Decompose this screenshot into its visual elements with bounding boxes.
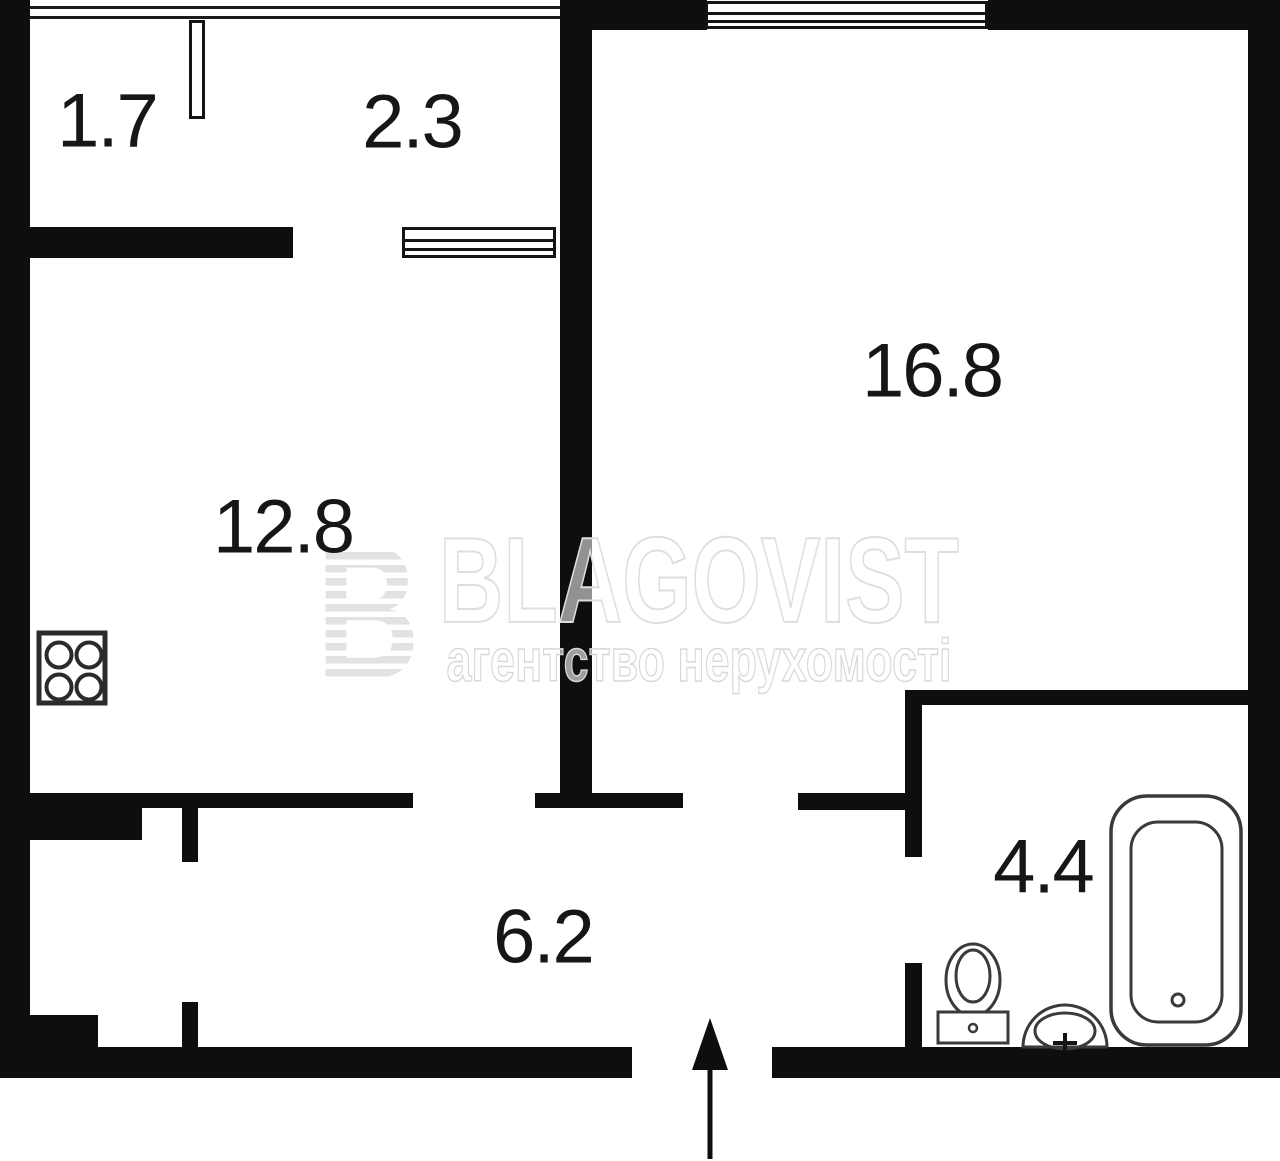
room-label-balcony-small: 1.7	[57, 78, 157, 165]
room-label-living-room: 16.8	[862, 328, 1002, 415]
wall-bathroom-left-upper	[905, 690, 922, 857]
wall-bathroom-left-lower	[905, 963, 922, 1047]
room-label-kitchen: 12.8	[213, 484, 353, 571]
window-mullion	[405, 239, 553, 242]
window-living-room	[705, 1, 988, 29]
wall-balcony-kitchen	[30, 227, 293, 258]
wall-top-right-segment	[988, 0, 1248, 30]
toilet-icon	[935, 942, 1011, 1046]
wall-hallway-protrusion	[30, 1015, 98, 1047]
sink-icon	[1019, 993, 1111, 1051]
balcony-glazing-inner-line	[30, 16, 560, 19]
room-label-bathroom: 4.4	[993, 824, 1093, 911]
room-label-hallway: 6.2	[493, 894, 593, 981]
floor-plan: B BLAGOVIST агентство нерухомості 1.7 2.…	[0, 0, 1280, 1161]
wall-bottom-right	[772, 1047, 1280, 1078]
watermark-tagline-text: агентство нерухомості	[447, 627, 952, 694]
wall-hallway-stub-lower	[182, 1002, 198, 1047]
wall-kitchen-hallway-b	[535, 793, 683, 808]
window-mullion	[708, 20, 985, 23]
room-label-balcony-large: 2.3	[362, 79, 462, 166]
window-mullion	[405, 248, 553, 251]
wall-right-exterior	[1248, 0, 1280, 1078]
entry-arrow-icon	[688, 1016, 732, 1161]
balcony-divider	[189, 20, 205, 119]
window-kitchen-balcony	[402, 227, 556, 258]
watermark: B BLAGOVIST агентство нерухомості	[290, 500, 990, 710]
window-mullion	[708, 12, 985, 15]
balcony-glazing-outer-line	[30, 6, 560, 9]
wall-hallway-stub-upper	[182, 808, 198, 862]
wall-top-left-segment	[592, 0, 707, 30]
wall-bottom-left	[0, 1047, 632, 1078]
wall-left-exterior	[0, 0, 30, 1078]
stove-icon	[36, 630, 108, 706]
wall-hallway-livingroom	[798, 793, 910, 810]
wall-kitchen-hallway-thick	[30, 793, 142, 840]
bathtub-icon	[1108, 793, 1244, 1049]
